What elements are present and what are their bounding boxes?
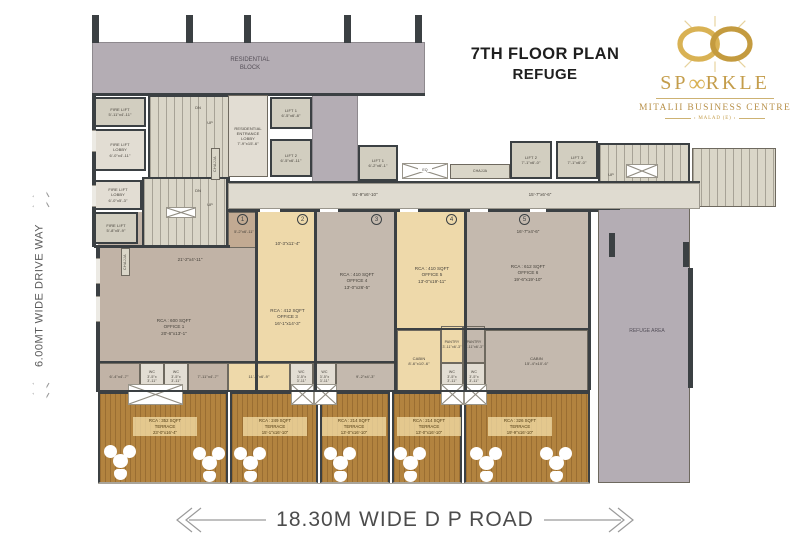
corridor-dim-left: 91'-9"x6'-10" — [330, 192, 400, 197]
stair-up-label: UP — [604, 172, 618, 177]
wall-segment — [588, 212, 591, 390]
pantry-dim: 3'-11"x6'-3" — [442, 345, 461, 350]
brand-tagline-text: MALAD (E) — [694, 116, 736, 121]
office-name: OFFICE 4 — [347, 278, 368, 283]
unit4-pantry: PANTRY3'-11"x6'-3" — [441, 326, 463, 363]
plant-icon — [470, 445, 503, 482]
wall-segment — [418, 209, 470, 212]
dim-label: 11'-0"x6'-9" — [248, 374, 269, 379]
terrace-rca: RCA : 249 SQFT — [259, 418, 291, 423]
duct-shaft-icon — [314, 384, 337, 405]
chajja-label: CHAJJA — [213, 156, 218, 172]
stair-landing-icon — [166, 207, 196, 218]
residential-entrance-lobby: RESIDENTIAL ENTRANCE LOBBY 7'-9"x15'-6" — [228, 95, 268, 177]
stair-up-label: UP — [202, 202, 218, 207]
terrace-rca: RCA : 352 SQFT — [149, 418, 181, 423]
brand-subtitle: MITALII BUSINESS CENTRE — [639, 103, 791, 113]
fire-lift-lower: FIRE LIFT 5'-8"x5'-9" — [94, 212, 138, 244]
wall-segment — [255, 212, 258, 390]
wall-segment — [98, 390, 590, 392]
dp-road-label: 18.30M WIDE D P ROAD — [276, 508, 534, 532]
service-dim-3: 11'-0"x6'-9" — [228, 363, 290, 391]
terrace-name: TERRACE — [265, 424, 286, 429]
dim-label: 9'-2"x4'-3" — [356, 374, 375, 379]
unit-number-text: 3 — [375, 217, 378, 223]
brand-name: SP∞RKLE — [656, 72, 774, 99]
wall-segment — [394, 212, 397, 390]
wall-segment — [683, 242, 689, 267]
floor-plan-page: 6'-4"x4'-7" WC3'-5"x3'-11" WC3'-5"x3'-11… — [0, 0, 800, 555]
wall-segment — [228, 181, 700, 183]
duct-shaft-icon — [128, 384, 183, 405]
plant-icon — [104, 443, 137, 480]
corridor — [228, 183, 700, 209]
office-name: OFFICE 3 — [277, 314, 298, 319]
residential-block-line2: BLOCK — [240, 65, 260, 71]
unit5-office-label: RCA : 612 SQFT OFFICE 6 19'-6"x19'-10" — [478, 264, 578, 283]
terrace-dim: 15'-1"x16'-10" — [262, 430, 288, 435]
office-dim: 13'-0"x26'-5" — [344, 285, 370, 290]
room-dim: 6'-0"x5'-3" — [108, 198, 127, 203]
wall-segment — [94, 245, 230, 248]
plant-icon — [234, 445, 267, 482]
fire-lift-lobby-lower: FIRE LIFT LOBBY 6'-0"x5'-3" — [94, 180, 142, 210]
unit3-office-label: RCA : 410 SQFT OFFICE 4 13'-0"x26'-5" — [320, 272, 394, 291]
wall-segment — [488, 209, 530, 212]
unit-number-text: 2 — [301, 217, 304, 223]
unit5-cabin: CABIN15'-4"x10'-6" — [485, 330, 588, 392]
room-dim: 7'-9"x15'-6" — [237, 141, 258, 146]
page-title: 7TH FLOOR PLAN REFUGE — [465, 44, 625, 85]
office-rca: RCA : 600 SQFT — [157, 318, 191, 323]
unit-1-number: 1 — [237, 214, 248, 225]
unit2-office — [258, 212, 317, 363]
plant-icon — [193, 445, 226, 482]
residential-block-lower — [312, 95, 358, 183]
unit4-cabin: CABIN8'-6"x10'-6" — [397, 330, 441, 392]
stair-landing-icon — [626, 164, 658, 178]
office-rca: RCA : 412 SQFT — [270, 308, 304, 313]
room-dim: 5'-8"x5'-9" — [106, 228, 125, 233]
room-dim: 7'-1"x6'-0" — [567, 160, 586, 165]
office-name: OFFICE 1 — [164, 324, 185, 329]
road-arrow-left-icon — [171, 505, 266, 535]
electrical-duct-label: EQ — [418, 168, 432, 172]
room-dim: 6'-2"x6'-1" — [368, 163, 387, 168]
terrace-name: TERRACE — [344, 424, 365, 429]
residential-block-label: RESIDENTIAL BLOCK — [200, 56, 300, 72]
wall-segment — [397, 328, 590, 330]
office-dim: 13'-0"x19'-11" — [418, 279, 446, 284]
commercial-lift-1: LIFT 1 6'-2"x6'-1" — [358, 145, 398, 181]
title-line1: 7TH FLOOR PLAN — [465, 44, 625, 65]
room-dim: 6'-5"x6'-8" — [281, 113, 300, 118]
refuge-area-label: REFUGE AREA — [612, 328, 682, 334]
dp-road-annotation: 18.30M WIDE D P ROAD — [168, 505, 642, 535]
terrace-3-label: RCA : 214 SQFT TERRACE 13'-0"x16'-10" — [322, 417, 386, 436]
wall-segment — [96, 363, 100, 392]
wall-segment — [98, 361, 395, 363]
residential-block-line1: RESIDENTIAL — [230, 57, 269, 63]
chajja-label: CHAJJA — [123, 254, 128, 270]
column — [344, 15, 351, 43]
unit5-top-dim: 16'-7"x4'-6" — [488, 229, 568, 234]
terrace-name: TERRACE — [419, 424, 440, 429]
column — [186, 15, 193, 43]
stair-up-label: UP — [202, 120, 218, 125]
unit1-entry-dim: 5'-2"x6'-11" — [224, 229, 264, 234]
terrace-2-label: RCA : 249 SQFT TERRACE 15'-1"x16'-10" — [243, 417, 307, 436]
office-name: OFFICE 5 — [422, 272, 443, 277]
office-rca: RCA : 410 SQFT — [340, 272, 374, 277]
unit-number-text: 1 — [241, 217, 244, 223]
cabin-dim: 8'-6"x10'-6" — [408, 361, 429, 366]
road-arrow-right-icon — [544, 505, 639, 535]
unit-3-number: 3 — [371, 214, 382, 225]
dim-label: 6'-4"x4'-7" — [109, 374, 128, 379]
chajja-label: CHAJJA — [473, 169, 487, 174]
pantry-dim: 3'-11"x6'-3" — [464, 345, 483, 350]
unit-2-number: 2 — [297, 214, 308, 225]
unit4-office-label: RCA : 410 SQFT OFFICE 5 13'-0"x19'-11" — [398, 266, 466, 285]
wall-segment — [314, 212, 317, 390]
wall-segment — [609, 233, 615, 257]
cabin-dim: 15'-4"x10'-6" — [525, 361, 549, 366]
commercial-lift-3: LIFT 3 7'-1"x6'-0" — [556, 141, 598, 179]
service-dim-4: 9'-2"x4'-3" — [336, 363, 395, 391]
window — [96, 258, 100, 284]
terrace-name: TERRACE — [155, 424, 176, 429]
plant-icon — [324, 445, 357, 482]
wall-segment — [92, 95, 96, 247]
terrace-dim: 19'-9"x16'-10" — [507, 430, 533, 435]
office-rca: RCA : 612 SQFT — [511, 264, 545, 269]
duct-shaft-icon — [291, 384, 314, 405]
commercial-lift-2: LIFT 2 7'-1"x6'-0" — [510, 141, 552, 179]
room-dim: 5'-11"x4'-11" — [108, 112, 131, 117]
brand-infinity-symbol: ∞ — [688, 71, 705, 97]
fire-lift-upper: FIRE LIFT 5'-11"x4'-11" — [94, 97, 146, 127]
unit-4-number: 4 — [446, 214, 457, 225]
office-dim: 16'-1"x14'-3" — [275, 321, 301, 326]
plant-icon — [540, 445, 573, 482]
chajja-strip: CHAJJA — [211, 148, 220, 180]
terrace-dim: 13'-0"x16'-10" — [416, 430, 442, 435]
stair-dn-label: DN — [190, 105, 206, 110]
window — [92, 130, 96, 152]
terrace-rca: RCA : 214 SQFT — [413, 418, 445, 423]
wall-segment — [464, 212, 467, 390]
chajja-strip-top: CHAJJA — [450, 164, 510, 179]
stair-extension-right — [692, 148, 776, 207]
terrace-1-label: RCA : 352 SQFT TERRACE 23'-0"x16'-4" — [133, 417, 197, 436]
unit-5-number: 5 — [519, 214, 530, 225]
room-dim: 6'-5"x6'-11" — [280, 158, 301, 163]
stair-dn-label: DN — [190, 188, 206, 193]
duct-shaft-icon — [441, 384, 464, 405]
unit2-top-dim: 10'-3"x11'-4" — [258, 241, 317, 246]
service-dim-2: 7'-11"x4'-7" — [188, 363, 228, 391]
drive-way-label: 6.00MT WIDE DRIVE WAY — [34, 176, 47, 416]
terrace-edge — [98, 483, 590, 484]
chajja-strip: CHAJJA — [121, 248, 130, 276]
window — [96, 296, 100, 322]
wall-segment — [688, 268, 693, 388]
corridor-dim-right: 15'-7"x6'-6" — [505, 192, 575, 197]
column — [415, 15, 422, 43]
column — [244, 15, 251, 43]
office-dim: 19'-6"x19'-10" — [514, 277, 542, 282]
terrace-rca: RCA : 326 SQFT — [504, 418, 536, 423]
residential-lift-2: LIFT 2 6'-5"x6'-11" — [270, 139, 312, 177]
dim-label: 7'-11"x4'-7" — [197, 374, 218, 379]
plant-icon — [394, 445, 427, 482]
column — [92, 15, 99, 43]
unit1-mid-dim: 21'-2"x4'-11" — [150, 257, 230, 262]
residential-lift-1: LIFT 1 6'-5"x6'-8" — [270, 97, 312, 129]
brand-logo: SP∞RKLE MITALII BUSINESS CENTRE MALAD (E… — [630, 16, 800, 121]
wall-segment — [338, 209, 400, 212]
terrace-dim: 23'-0"x16'-4" — [153, 430, 177, 435]
terrace-rca: RCA : 214 SQFT — [338, 418, 370, 423]
room-dim: 6'-0"x4'-11" — [109, 153, 130, 158]
infinity-logo-icon — [655, 16, 775, 72]
unit-number-text: 5 — [523, 217, 526, 223]
unit-number-text: 4 — [450, 217, 453, 223]
terrace-name: TERRACE — [510, 424, 531, 429]
brand-suffix: RKLE — [706, 72, 770, 94]
office-name: OFFICE 6 — [518, 270, 539, 275]
brand-tagline: MALAD (E) — [665, 116, 765, 121]
unit1-office-label: RCA : 600 SQFT OFFICE 1 20'-6"x13'-1" — [132, 318, 216, 337]
brand-prefix: SP — [660, 72, 688, 94]
terrace-4-label: RCA : 214 SQFT TERRACE 13'-0"x16'-10" — [397, 417, 461, 436]
office-dim: 20'-6"x13'-1" — [161, 331, 187, 336]
duct-shaft-icon — [464, 384, 487, 405]
terrace-5-label: RCA : 326 SQFT TERRACE 19'-9"x16'-10" — [488, 417, 552, 436]
terrace-dim: 13'-0"x16'-10" — [341, 430, 367, 435]
office-rca: RCA : 410 SQFT — [415, 266, 449, 271]
fire-lift-lobby-upper: FIRE LIFT LOBBY 6'-0"x4'-11" — [94, 129, 146, 171]
window — [92, 185, 96, 207]
unit2-office-label: RCA : 412 SQFT OFFICE 3 16'-1"x14'-3" — [260, 308, 315, 327]
title-line2: REFUGE — [465, 65, 625, 85]
room-dim: 7'-1"x6'-0" — [521, 160, 540, 165]
